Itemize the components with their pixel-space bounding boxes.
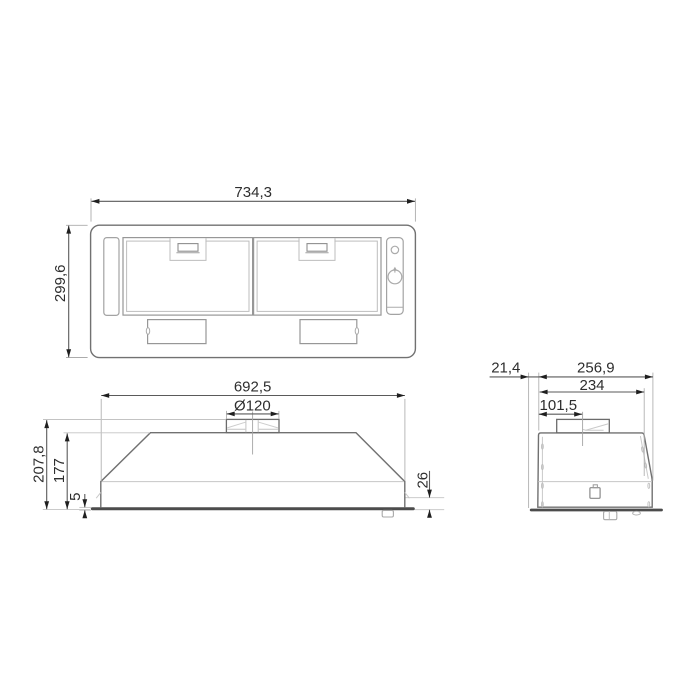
svg-text:256,9: 256,9 <box>577 360 615 377</box>
svg-text:Ø120: Ø120 <box>234 397 271 414</box>
svg-text:101,5: 101,5 <box>540 397 578 414</box>
svg-text:734,3: 734,3 <box>234 184 272 201</box>
svg-text:26: 26 <box>415 472 432 489</box>
svg-text:5: 5 <box>67 493 84 501</box>
svg-text:234: 234 <box>579 377 604 394</box>
svg-text:207,8: 207,8 <box>31 445 48 483</box>
svg-text:299,6: 299,6 <box>52 265 69 303</box>
svg-text:692,5: 692,5 <box>234 379 272 396</box>
svg-text:177: 177 <box>51 458 68 483</box>
svg-text:21,4: 21,4 <box>491 360 520 377</box>
